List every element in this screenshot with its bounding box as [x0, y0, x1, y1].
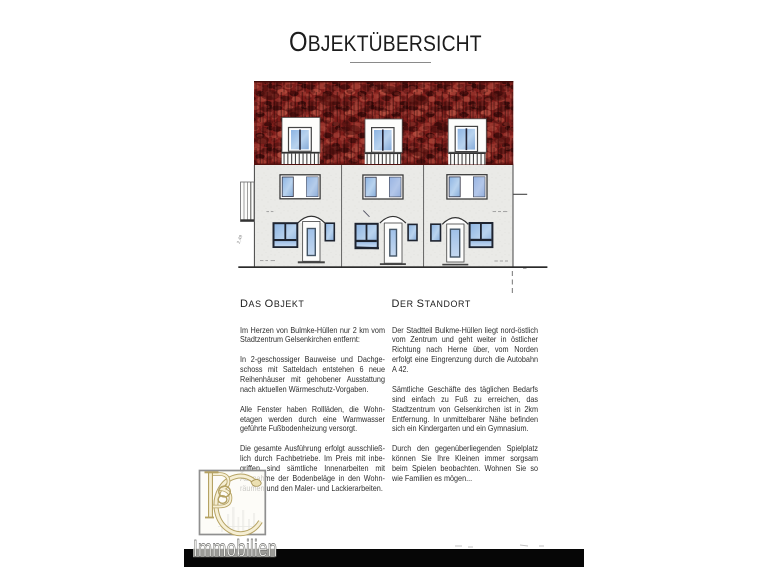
- svg-text:Immobilien: Immobilien: [193, 535, 277, 562]
- svg-text:2,49: 2,49: [236, 234, 244, 245]
